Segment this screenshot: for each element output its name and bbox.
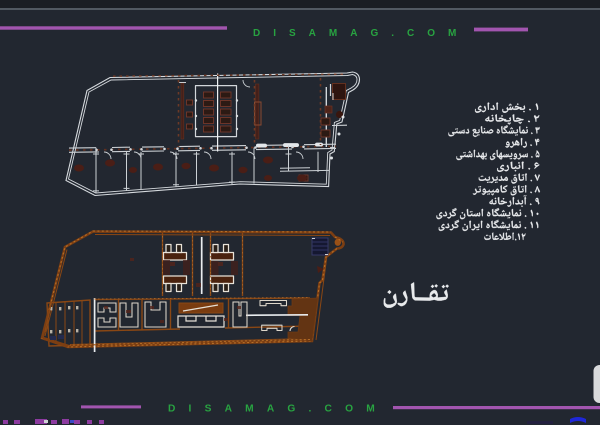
svg-text:DISAMAG.COM: DISAMAG.COM — [253, 28, 469, 39]
svg-text:DISAMAG.COM: DISAMAG.COM — [168, 403, 388, 414]
